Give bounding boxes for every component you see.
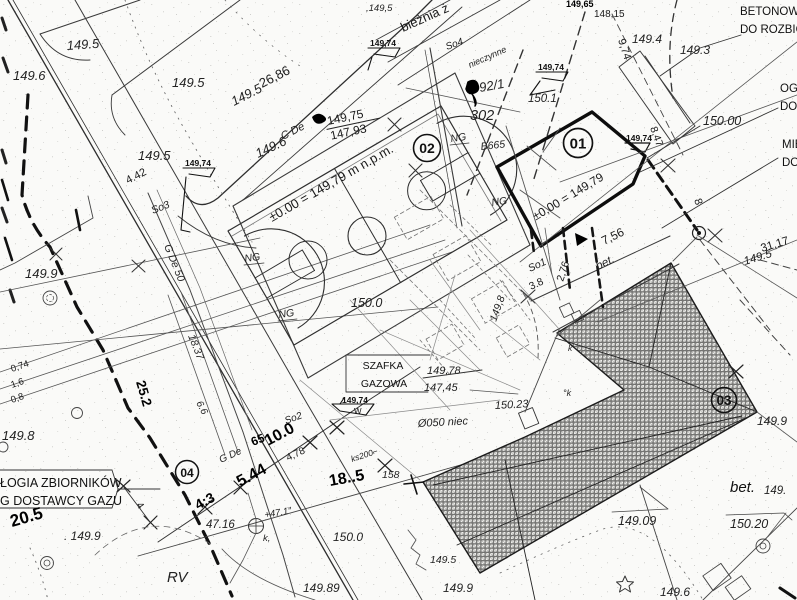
svg-text:NG: NG [244, 251, 261, 265]
svg-text:G DOSTAWCY GAZU: G DOSTAWCY GAZU [0, 494, 122, 508]
svg-text:149.8: 149.8 [2, 428, 35, 443]
svg-text:149.4: 149.4 [632, 32, 662, 46]
svg-text:149.5: 149.5 [430, 554, 456, 566]
svg-text:NG: NG [450, 131, 467, 145]
svg-text:302: 302 [470, 108, 494, 124]
svg-text:01: 01 [570, 136, 587, 153]
svg-text:NG: NG [491, 195, 508, 209]
svg-text:RV: RV [167, 569, 190, 586]
svg-text:. 149.9: . 149.9 [64, 529, 101, 543]
svg-text:k,: k, [263, 533, 270, 544]
svg-text:150.0: 150.0 [333, 530, 363, 544]
svg-text:149,74: 149,74 [626, 133, 652, 143]
svg-text:149,65: 149,65 [566, 0, 594, 9]
svg-text:OGR: OGR [780, 83, 797, 95]
svg-text:149.5: 149.5 [172, 75, 205, 90]
svg-text:158: 158 [382, 469, 400, 481]
svg-text:NG: NG [278, 307, 295, 321]
svg-text:B665: B665 [480, 138, 506, 153]
svg-text:149,74: 149,74 [185, 158, 211, 168]
svg-text:150.0: 150.0 [351, 296, 382, 310]
svg-text:°k: °k [563, 388, 572, 398]
svg-text:149.9: 149.9 [757, 414, 787, 428]
svg-text:04: 04 [180, 466, 194, 480]
svg-text:150.20: 150.20 [730, 517, 768, 531]
svg-text:149.6: 149.6 [13, 68, 46, 83]
svg-text:MIE: MIE [782, 139, 797, 151]
svg-text:149.5: 149.5 [138, 148, 171, 163]
svg-text:DO: DO [780, 101, 797, 113]
svg-text:GAZOWA: GAZOWA [361, 378, 407, 390]
svg-text:149.: 149. [764, 485, 786, 497]
svg-text:W: W [354, 407, 362, 416]
svg-text:149,74: 149,74 [370, 38, 396, 48]
svg-text:149.89: 149.89 [303, 581, 340, 595]
svg-text:03: 03 [716, 393, 732, 408]
svg-text:ŁOGIA ZBIORNIKÓW: ŁOGIA ZBIORNIKÓW [0, 475, 122, 490]
svg-text:148,15: 148,15 [594, 9, 625, 20]
svg-text:,149,5: ,149,5 [366, 3, 393, 14]
svg-text:DO: DO [782, 157, 797, 169]
svg-text:SZAFKA: SZAFKA [363, 360, 404, 372]
svg-text:149.9: 149.9 [25, 266, 58, 281]
svg-text:150.00: 150.00 [703, 114, 741, 128]
svg-text:150.23: 150.23 [495, 398, 530, 412]
svg-text:BETONOWA: BETONOWA [740, 6, 797, 18]
svg-text:149.6: 149.6 [660, 585, 690, 599]
svg-text:149,74: 149,74 [342, 395, 368, 405]
svg-text:47.16: 47.16 [206, 519, 235, 531]
svg-text:149.5: 149.5 [66, 36, 100, 53]
svg-text:149.09: 149.09 [618, 514, 656, 528]
svg-text:bet.: bet. [730, 479, 755, 496]
svg-text:149.3: 149.3 [680, 43, 710, 57]
svg-text:147,45: 147,45 [424, 382, 459, 394]
svg-text:149.9: 149.9 [443, 581, 473, 595]
svg-text:149,74: 149,74 [538, 62, 564, 72]
svg-text:DO ROZBIÓR: DO ROZBIÓR [740, 23, 797, 36]
svg-text:02: 02 [419, 140, 435, 156]
svg-text:150.1: 150.1 [528, 93, 557, 105]
